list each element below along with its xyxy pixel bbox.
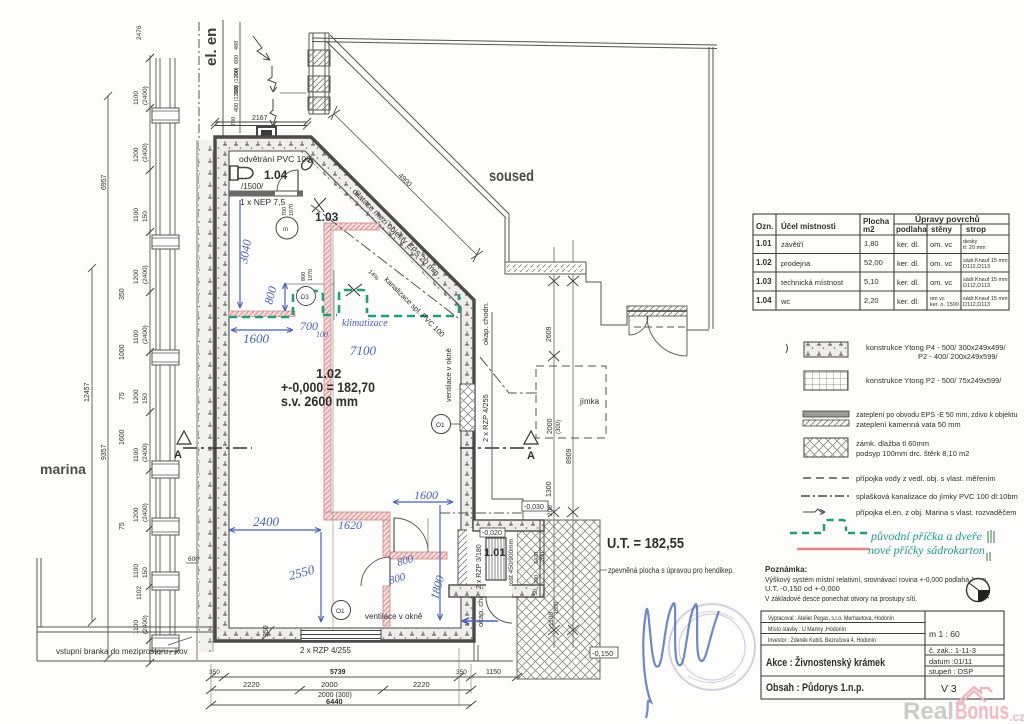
svg-text:1500: 1500 <box>554 602 560 614</box>
svg-text:splašková kanalizace do jímky: splašková kanalizace do jímky PVC 100 dl… <box>856 492 1018 501</box>
svg-text:Výškový systém místní relativn: Výškový systém místní relativní, srovnáv… <box>765 575 988 584</box>
svg-text:D112,D113: D112,D113 <box>963 302 990 308</box>
svg-text:2476: 2476 <box>136 25 143 40</box>
svg-text:1.02: 1.02 <box>316 366 341 381</box>
svg-text:1000: 1000 <box>119 344 126 360</box>
svg-text:m 1 : 60: m 1 : 60 <box>929 629 960 639</box>
svg-text:-0,150: -0,150 <box>592 649 613 658</box>
svg-text:7100: 7100 <box>350 343 377 358</box>
svg-text:ventilace v okně: ventilace v okně <box>365 612 423 621</box>
svg-text:přípojka vody z vedl. obj. s v: přípojka vody z vedl. obj. s vlast. měře… <box>856 474 996 483</box>
svg-text:2000: 2000 <box>321 680 338 689</box>
svg-text:O1: O1 <box>336 608 345 615</box>
svg-text:podsyp 100mm drc. štěrk 8,10: podsyp 100mm drc. štěrk 8,10 m2 <box>856 449 969 458</box>
svg-text:2 x RZP 4/255: 2 x RZP 4/255 <box>481 394 490 442</box>
svg-text:2 x RZP 3/180: 2 x RZP 3/180 <box>476 544 483 589</box>
svg-text:1970: 1970 <box>289 204 295 216</box>
svg-text:om. vc: om. vc <box>930 278 952 287</box>
svg-text:75: 75 <box>119 392 126 400</box>
svg-text:A: A <box>527 450 535 462</box>
svg-text:(300): (300) <box>556 420 562 434</box>
svg-text:P2 - 400/ 200x249x599/: P2 - 400/ 200x249x599/ <box>918 352 999 361</box>
svg-text:1100: 1100 <box>133 448 140 462</box>
svg-text:1970: 1970 <box>308 269 314 281</box>
svg-text:ker. dl.: ker. dl. <box>897 297 919 306</box>
svg-text:Úpravy povrchů: Úpravy povrchů <box>915 213 980 224</box>
svg-text:100: 100 <box>316 330 328 339</box>
svg-text:1200: 1200 <box>133 507 140 522</box>
svg-text:(2400): (2400) <box>142 265 149 284</box>
svg-text:(2400): (2400) <box>142 503 149 522</box>
svg-text:400 (1200): 400 (1200) <box>234 85 240 112</box>
svg-text:ker. dl.: ker. dl. <box>897 278 919 287</box>
svg-text:V 3: V 3 <box>941 683 957 695</box>
svg-text:ker. o. 1500: ker. o. 1500 <box>930 302 959 308</box>
svg-text:wc: wc <box>780 297 790 306</box>
svg-text:Ozn.: Ozn. <box>756 222 773 231</box>
svg-text:Vypracoval : Atelier Pegas, s.: Vypracoval : Atelier Pegas, s.r.o. Merha… <box>768 615 894 622</box>
svg-text:1.04: 1.04 <box>756 296 772 305</box>
svg-text:1.01: 1.01 <box>484 547 505 559</box>
svg-text:1200: 1200 <box>133 389 140 404</box>
svg-text:1100: 1100 <box>133 91 140 105</box>
svg-text:technická místnost: technická místnost <box>781 278 844 287</box>
svg-text:U.T. = 182,55: U.T. = 182,55 <box>607 535 684 552</box>
svg-text:1.01: 1.01 <box>756 239 772 248</box>
svg-text:2167: 2167 <box>252 115 268 122</box>
svg-text:1200: 1200 <box>133 147 140 162</box>
svg-text:/1500/: /1500/ <box>241 182 264 191</box>
svg-text:1100: 1100 <box>133 564 140 578</box>
svg-text:1600: 1600 <box>119 429 126 445</box>
svg-text:5739: 5739 <box>330 669 346 676</box>
svg-text:(2400): (2400) <box>142 443 149 462</box>
svg-text:konstrukce Ytong P2 - 500/ 7: konstrukce Ytong P2 - 500/ 75x249x599/ <box>866 376 1002 385</box>
svg-text:1.02: 1.02 <box>756 258 772 267</box>
svg-text:700: 700 <box>282 207 288 216</box>
svg-text:klimatizace: klimatizace <box>342 318 388 329</box>
svg-text:jímka: jímka <box>579 397 600 406</box>
svg-text:okap. chodn.: okap. chodn. <box>481 302 490 345</box>
svg-text:původní příčka a dveře: původní příčka a dveře <box>870 529 983 543</box>
svg-text:Akce : Živnostenský krámek: Akce : Živnostenský krámek <box>766 656 886 669</box>
svg-text:Investor : Zdeněk Kubiš, Bezru: Investor : Zdeněk Kubiš, Bezručova 4, Ho… <box>768 637 876 644</box>
svg-text:6957: 6957 <box>101 174 108 190</box>
svg-text:podlaha: podlaha <box>896 225 927 234</box>
svg-text:150: 150 <box>142 211 149 222</box>
svg-text:600: 600 <box>234 55 240 64</box>
svg-text:2400: 2400 <box>253 514 280 529</box>
svg-text:600: 600 <box>188 556 199 563</box>
svg-text:zpevněná plocha s úpravou pro: zpevněná plocha s úpravou pro hendikep. <box>608 566 734 575</box>
svg-text:1100: 1100 <box>133 208 140 222</box>
svg-text:2000: 2000 <box>547 418 554 434</box>
svg-text:1300: 1300 <box>546 481 553 497</box>
svg-text:9357: 9357 <box>101 444 108 460</box>
svg-text:2,20: 2,20 <box>864 296 879 305</box>
svg-text:(2400): (2400) <box>142 143 149 162</box>
svg-text:350: 350 <box>209 669 220 676</box>
svg-text:tl: 20 mm: tl: 20 mm <box>963 245 986 251</box>
svg-text:el. en: el. en <box>203 28 220 66</box>
svg-text:800: 800 <box>301 272 307 281</box>
svg-text:-0,030: -0,030 <box>524 504 544 511</box>
svg-text:zateplení po obvodu EPS -E 50: zateplení po obvodu EPS -E 50 mm, zdivo … <box>856 412 1018 419</box>
svg-text:12457: 12457 <box>84 382 91 402</box>
svg-text:s.v. 2600 mm: s.v. 2600 mm <box>281 394 358 409</box>
svg-text:350: 350 <box>119 288 126 300</box>
svg-text:1150: 1150 <box>486 669 501 676</box>
svg-text:ker. dl.: ker. dl. <box>897 259 919 268</box>
svg-text:zámk. dlažba tl 60mm: zámk. dlažba tl 60mm <box>856 439 929 448</box>
svg-text:Účel mistnosti: Účel mistnosti <box>781 222 836 231</box>
svg-text:(2400): (2400) <box>142 86 149 105</box>
svg-text:(2400): (2400) <box>142 325 149 344</box>
svg-text:ker. dl.: ker. dl. <box>897 240 919 249</box>
svg-text:150: 150 <box>142 567 149 578</box>
svg-text:6440: 6440 <box>326 697 343 706</box>
svg-text:D112,D113: D112,D113 <box>963 283 990 289</box>
svg-text:2220: 2220 <box>243 680 260 689</box>
svg-text:konstrukce Ytong P4 - 500/ 3: konstrukce Ytong P4 - 500/ 300x249x499/ <box>866 343 1006 352</box>
svg-text:5,10: 5,10 <box>864 277 879 286</box>
svg-text:1.03: 1.03 <box>756 277 772 286</box>
svg-text:1102: 1102 <box>136 586 143 600</box>
svg-text:.cz: .cz <box>1009 710 1024 724</box>
svg-text:2 x RZP 4/255: 2 x RZP 4/255 <box>300 646 352 655</box>
svg-text:ventilace v okně: ventilace v okně <box>444 348 453 402</box>
svg-text:Real: Real <box>903 698 954 724</box>
svg-text:strop: strop <box>966 225 986 234</box>
svg-text:stěny: stěny <box>931 225 952 234</box>
svg-text:O1: O1 <box>436 422 445 429</box>
svg-text:200: 200 <box>534 575 540 584</box>
svg-text:om. vc: om. vc <box>930 259 952 268</box>
svg-text:m: m <box>283 227 288 233</box>
svg-text:m2: m2 <box>863 225 875 234</box>
svg-text:(2400): (2400) <box>142 615 149 634</box>
svg-text:Obsah : Půdorys 1.n.p.: Obsah : Půdorys 1.n.p. <box>766 682 864 694</box>
svg-text:vstupní branka do meziprostoru: vstupní branka do meziprostoru - kov <box>56 647 188 656</box>
svg-text:D3: D3 <box>301 295 309 301</box>
svg-text:1100: 1100 <box>133 330 140 344</box>
svg-text:U.T. -0,150 od +-0,000: U.T. -0,150 od +-0,000 <box>765 584 840 593</box>
svg-text:8909: 8909 <box>566 448 573 464</box>
svg-text:1.03: 1.03 <box>315 210 339 224</box>
svg-text:zateplení kamenná vata 50 mm: zateplení kamenná vata 50 mm <box>856 420 961 429</box>
svg-text:nové příčky sádrokarton: nové příčky sádrokarton <box>868 543 985 557</box>
svg-text:75: 75 <box>119 522 126 530</box>
svg-text:488: 488 <box>234 41 240 50</box>
svg-text:1600: 1600 <box>414 488 438 502</box>
svg-text:1,80: 1,80 <box>864 239 879 248</box>
svg-text:stupeň : DSP: stupeň : DSP <box>929 667 973 676</box>
svg-text:2220: 2220 <box>413 680 430 689</box>
svg-text:závětří: závětří <box>781 240 804 249</box>
svg-text:1.04: 1.04 <box>264 168 288 182</box>
svg-text:V základové desce ponechat otv: V základové desce ponechat otvory na pro… <box>765 594 917 603</box>
svg-text:1200: 1200 <box>133 269 140 284</box>
svg-text:soused: soused <box>489 168 534 185</box>
svg-text:1620: 1620 <box>338 518 362 532</box>
svg-text:2390: 2390 <box>540 552 546 564</box>
svg-text:+-0,000 = 182,70: +-0,000 = 182,70 <box>281 380 375 395</box>
svg-text:om. vc: om. vc <box>930 240 952 249</box>
svg-text:150: 150 <box>142 393 149 404</box>
svg-text:datum :01/11: datum :01/11 <box>929 657 972 666</box>
svg-text:marina: marina <box>40 461 86 477</box>
svg-text:Místo stavby : U Mariny ,Hodo: Místo stavby : U Mariny ,Hodonín <box>768 626 846 633</box>
svg-text:rošt 450/900mm: rošt 450/900mm <box>508 539 515 586</box>
svg-text:odvětrání PVC 100: odvětrání PVC 100 <box>239 154 311 164</box>
svg-text:1 x NEP 7,5: 1 x NEP 7,5 <box>240 197 285 207</box>
svg-text:Poznámka:: Poznámka: <box>765 565 807 574</box>
svg-text:200: 200 <box>547 505 554 516</box>
svg-text:52,00: 52,00 <box>864 258 883 267</box>
svg-text:přípojka el.en. z obj. Marina: přípojka el.en. z obj. Marina s vlast. r… <box>856 508 1017 517</box>
svg-text:700: 700 <box>231 117 237 126</box>
svg-text:prodejna: prodejna <box>781 259 811 268</box>
svg-text:A: A <box>174 449 182 461</box>
svg-text:2609: 2609 <box>546 326 553 342</box>
svg-text:D112,D113: D112,D113 <box>963 264 990 270</box>
svg-text:50: 50 <box>533 589 539 595</box>
svg-text:1600: 1600 <box>243 331 270 346</box>
svg-text:-0,020: -0,020 <box>482 530 502 537</box>
svg-text:350: 350 <box>456 669 467 676</box>
svg-text:č. zak.: 1-11-3: č. zak.: 1-11-3 <box>929 646 976 655</box>
